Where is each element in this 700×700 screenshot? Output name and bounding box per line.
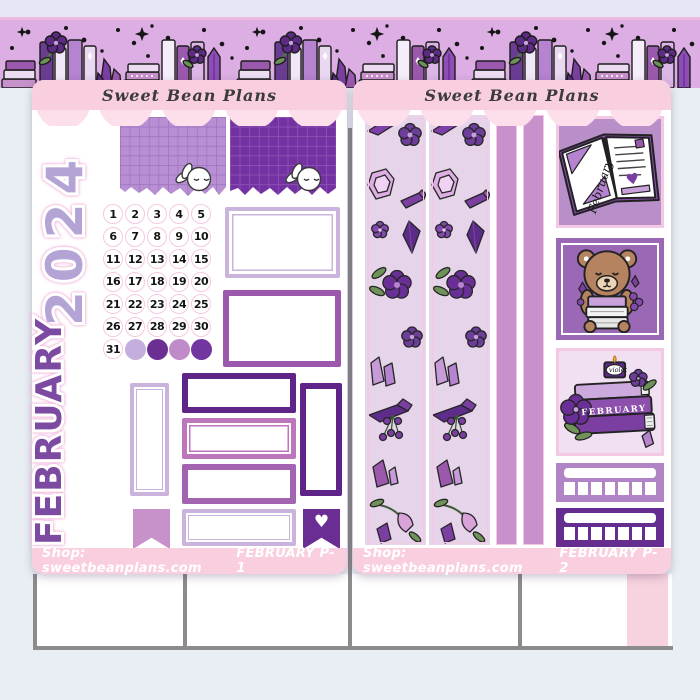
tracker-title-bar	[564, 468, 656, 478]
tracker-checkbox	[645, 482, 656, 495]
calendar-dot	[191, 339, 212, 360]
tracker-checkbox	[591, 527, 602, 540]
washi-strip-solid	[496, 115, 517, 545]
calendar-day: 28	[147, 317, 167, 337]
heart-flag-sticker: ♥	[303, 509, 340, 549]
calendar-day: 5	[191, 204, 211, 224]
scallop-trim	[353, 110, 671, 126]
calendar-day: 31	[103, 339, 123, 359]
teddy-bear-icon	[556, 240, 658, 336]
grid-note-sticker-light	[120, 117, 226, 205]
tracker-title-bar	[564, 513, 656, 523]
tracker-checkbox	[564, 482, 575, 495]
scallop-trim	[32, 110, 347, 126]
calendar-dot	[169, 339, 190, 360]
page-label: FEBRUARY P-1	[236, 546, 337, 576]
half-box-sticker-orchid	[182, 418, 296, 459]
vertical-box-sticker-dark	[300, 383, 342, 496]
calendar-day: 4	[169, 204, 189, 224]
calendar-day: 16	[103, 272, 123, 292]
calendar-day: 17	[125, 272, 145, 292]
calendar-day: 15	[191, 249, 211, 269]
product-photo: Sweet Bean Plans 2024 FEBRUARY	[0, 0, 700, 700]
teddy-bear-sticker	[556, 238, 664, 340]
calendar-day: 8	[147, 227, 167, 247]
journal-sticker: ♥ February	[556, 116, 664, 228]
sheet-header: Sweet Bean Plans	[353, 80, 671, 110]
book-stack-sticker: violet FEBRUARY	[556, 348, 664, 456]
calendar-day: 19	[169, 272, 189, 292]
calendar-day: 21	[103, 294, 123, 314]
washi-strip-solid	[523, 115, 544, 545]
calendar-day: 3	[147, 204, 167, 224]
half-box-sticker-dark	[182, 373, 296, 413]
tracker-squares	[556, 482, 664, 495]
calendar-day: 10	[191, 227, 211, 247]
crystal-icon	[642, 430, 653, 447]
planner-column-divider	[33, 574, 37, 648]
page-flag-sticker	[133, 509, 170, 549]
planner-page-background	[33, 574, 672, 648]
decorative-bookshelf-border	[0, 17, 700, 88]
calendar-day: 26	[103, 317, 123, 337]
calendar-day: 6	[103, 227, 123, 247]
planner-column-divider	[183, 574, 187, 648]
calendar-dot	[125, 339, 146, 360]
washi-strip-patterned	[365, 115, 426, 545]
tracker-checkbox	[578, 527, 589, 540]
sticker-sheet-p2: Sweet Bean Plans	[353, 80, 671, 574]
tracker-checkbox	[618, 482, 629, 495]
tracker-squares	[556, 527, 664, 540]
calendar-day: 7	[125, 227, 145, 247]
washi-strip-patterned	[429, 115, 490, 545]
calendar-day: 14	[169, 249, 189, 269]
full-box-sticker-purple	[223, 290, 341, 367]
tracker-checkbox	[591, 482, 602, 495]
background-top-strip	[0, 0, 700, 17]
calendar-dot	[147, 339, 168, 360]
sheet-footer: Shop: sweetbeanplans.com FEBRUARY P-1	[32, 548, 347, 574]
heart-icon: ♥	[314, 512, 329, 532]
half-box-sticker-light	[182, 509, 296, 546]
tracker-checkbox	[632, 527, 643, 540]
calendar-day: 18	[147, 272, 167, 292]
tracker-checkbox	[605, 482, 616, 495]
calendar-day: 13	[147, 249, 167, 269]
sheet-header: Sweet Bean Plans	[32, 80, 347, 110]
calendar-day: 24	[169, 294, 189, 314]
calendar-day: 9	[169, 227, 189, 247]
calendar-grid: 1234567891011121314151617181920212223242…	[103, 204, 211, 359]
planner-page-bottom-edge	[33, 646, 673, 650]
calendar-day: 27	[125, 317, 145, 337]
calendar-day: 1	[103, 204, 123, 224]
half-box-sticker-purple	[182, 464, 296, 504]
calendar-day: 30	[191, 317, 211, 337]
calendar-day: 2	[125, 204, 145, 224]
shop-label: Shop: sweetbeanplans.com	[363, 546, 559, 576]
sticker-sheet-p1: Sweet Bean Plans 2024 FEBRUARY	[32, 80, 347, 574]
brand-title: Sweet Bean Plans	[353, 80, 671, 110]
brand-title: Sweet Bean Plans	[32, 80, 347, 110]
tracker-checkbox	[618, 527, 629, 540]
habit-tracker-sticker-light	[556, 463, 664, 502]
calendar-day: 12	[125, 249, 145, 269]
tracker-checkbox	[564, 527, 575, 540]
planner-column-divider	[348, 128, 352, 648]
month-sticker: FEBRUARY	[29, 302, 95, 560]
calendar-day: 25	[191, 294, 211, 314]
planner-column-divider	[518, 574, 522, 648]
grid-note-sticker-dark	[230, 117, 336, 205]
tracker-checkbox	[578, 482, 589, 495]
calendar-day: 23	[147, 294, 167, 314]
tracker-checkbox	[645, 527, 656, 540]
full-box-sticker-light	[225, 207, 340, 278]
shop-label: Shop: sweetbeanplans.com	[42, 546, 236, 576]
habit-tracker-sticker-dark	[556, 508, 664, 547]
page-label: FEBRUARY P-2	[559, 546, 661, 576]
candle-label: violet	[602, 366, 634, 374]
tracker-checkbox	[632, 482, 643, 495]
calendar-day: 22	[125, 294, 145, 314]
calendar-day: 11	[103, 249, 123, 269]
vertical-box-sticker-light	[130, 383, 169, 496]
tracker-checkbox	[605, 527, 616, 540]
calendar-day: 20	[191, 272, 211, 292]
sheet-footer: Shop: sweetbeanplans.com FEBRUARY P-2	[353, 548, 671, 574]
calendar-day: 29	[169, 317, 189, 337]
planner-page-pink-edge	[627, 574, 668, 646]
